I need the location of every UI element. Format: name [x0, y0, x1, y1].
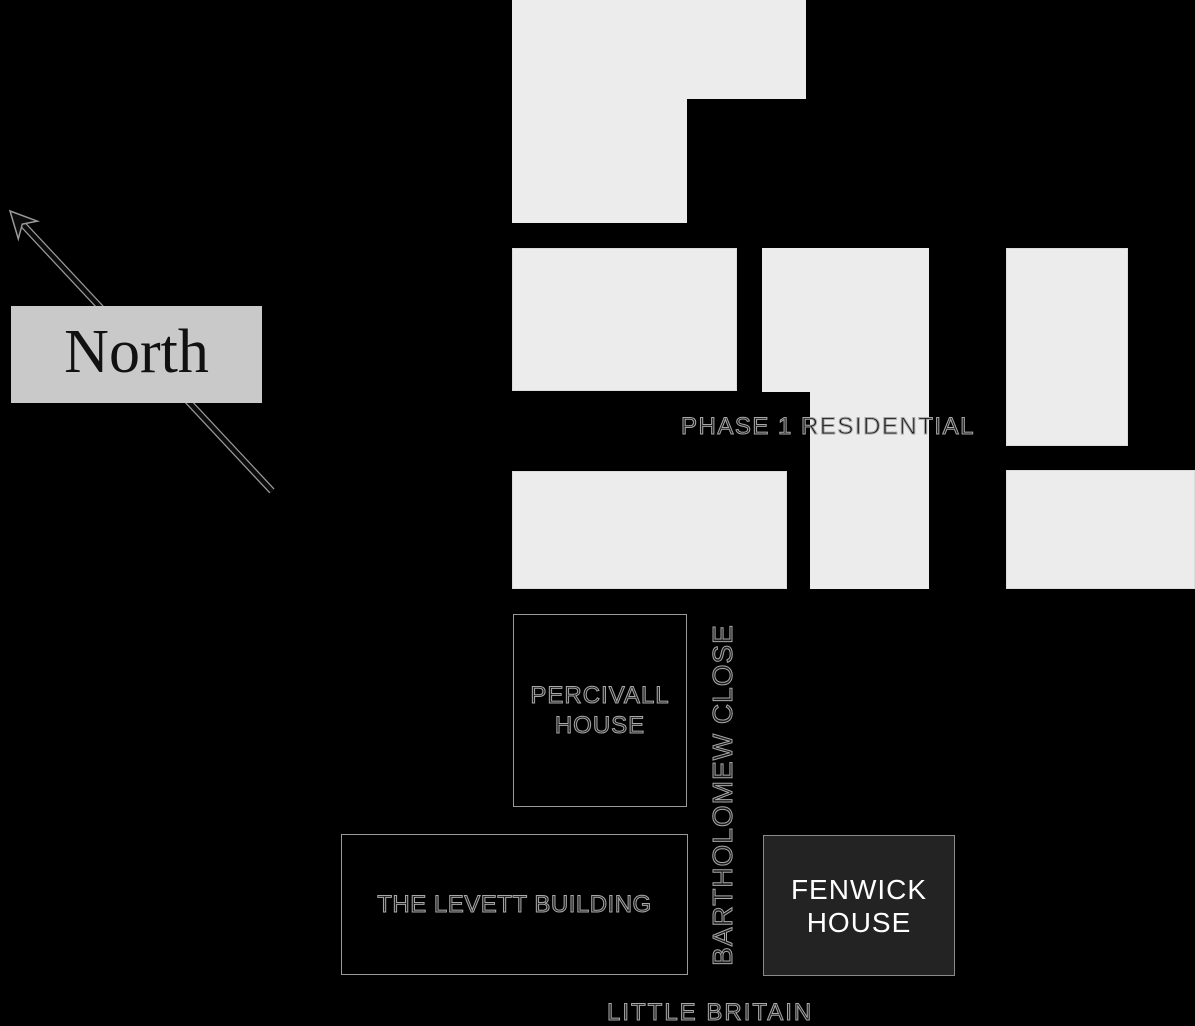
building-fenwick-house[interactable]: FENWICK HOUSE	[763, 835, 955, 976]
building-block-right-top	[1006, 248, 1128, 446]
building-block-bottom-mid	[512, 471, 787, 589]
percivall-house-label-line1: PERCIVALL	[530, 681, 669, 711]
building-block-top-l-shape	[512, 0, 806, 223]
street-label-bartholomew-close: BARTHOLOMEW CLOSE	[709, 624, 737, 966]
fenwick-house-label-line1: FENWICK	[791, 873, 927, 906]
building-the-levett-building[interactable]: THE LEVETT BUILDING	[341, 834, 688, 975]
fenwick-house-label-line2: HOUSE	[807, 906, 912, 939]
site-plan-map: PHASE 1 RESIDENTIAL North PERCIVALL HOUS…	[0, 0, 1195, 1026]
percivall-house-label-line2: HOUSE	[555, 711, 645, 741]
street-label-little-britain: LITTLE BRITAIN	[607, 1001, 813, 1025]
building-block-mid-left	[512, 248, 737, 391]
north-indicator: North	[11, 306, 262, 403]
building-percivall-house[interactable]: PERCIVALL HOUSE	[513, 614, 687, 807]
levett-building-label: THE LEVETT BUILDING	[377, 891, 651, 919]
building-block-right-bottom	[1006, 470, 1195, 589]
phase1-residential-label: PHASE 1 RESIDENTIAL	[681, 415, 975, 439]
